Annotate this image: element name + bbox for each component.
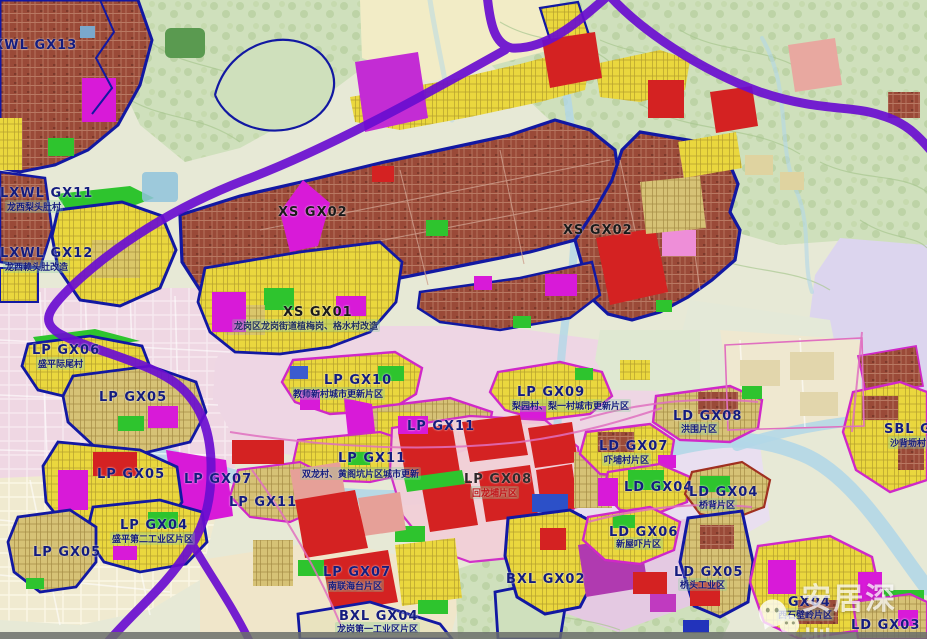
- bottom-edge-strip: [0, 632, 927, 639]
- zoning-map: [0, 0, 927, 639]
- zoning-map-screenshot: LXWL GX13LXWL GX11龙西梨头肚村LXWL GX12龙西赖头肚改造…: [0, 0, 927, 639]
